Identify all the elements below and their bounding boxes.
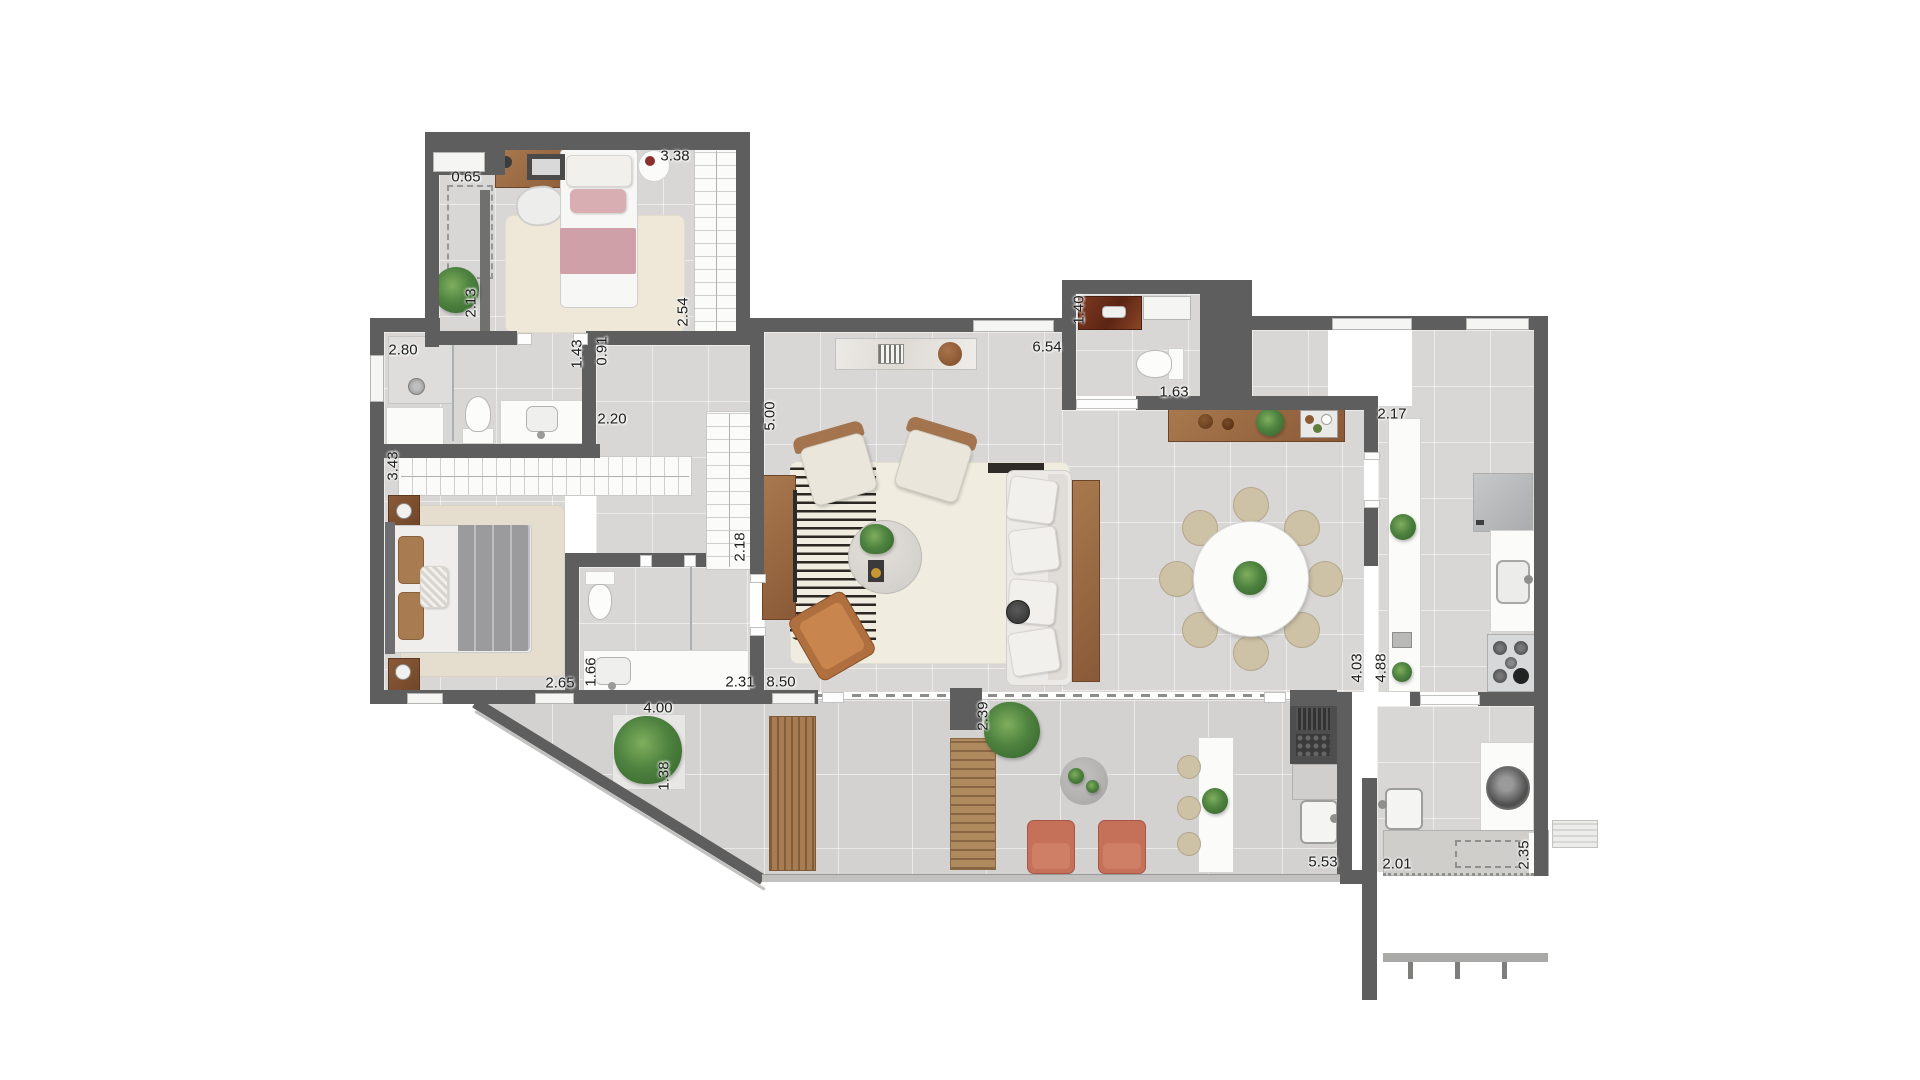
master-bottom-window-b bbox=[535, 693, 574, 704]
wall-kitchen-stub-a bbox=[1364, 396, 1378, 452]
ensuite-sink bbox=[595, 657, 631, 685]
laundry-counter-outline bbox=[1455, 840, 1521, 868]
dimension-label: 1.63 bbox=[1159, 385, 1188, 400]
washer-drum bbox=[1486, 766, 1530, 810]
bath1-sink bbox=[526, 406, 558, 432]
grill-counter bbox=[1290, 700, 1337, 764]
dimension-label: 2.31 bbox=[725, 675, 754, 690]
sideboard-bowl-1 bbox=[1198, 414, 1213, 429]
ensuite-door-jamb-b bbox=[684, 555, 696, 567]
hall-door-jamb-a bbox=[750, 574, 766, 583]
sliding-door-track bbox=[818, 694, 1290, 697]
sliding-door-track-base bbox=[818, 699, 1290, 700]
single-bed-pillow bbox=[566, 155, 632, 187]
dimension-label: 5.53 bbox=[1308, 855, 1337, 870]
dimension-label: 0.65 bbox=[451, 170, 480, 185]
bowl-decor bbox=[938, 342, 962, 366]
tray-cup-3 bbox=[1313, 424, 1322, 433]
shower-head-icon bbox=[408, 378, 425, 395]
dimension-label: 1.40 bbox=[1072, 295, 1087, 324]
tray-cup-1 bbox=[1305, 415, 1314, 424]
living-top-window bbox=[973, 320, 1054, 332]
sofa-pillow-1 bbox=[1005, 475, 1059, 525]
coffee-table-plant bbox=[860, 524, 894, 554]
dimension-label: 1.66 bbox=[584, 657, 599, 686]
stove bbox=[1487, 634, 1535, 692]
wall-laundry-right bbox=[1534, 706, 1548, 876]
dining-chair-s bbox=[1233, 635, 1269, 671]
sideboard-plant bbox=[1256, 408, 1284, 436]
double-bed-cushion bbox=[420, 566, 448, 608]
wall-terrace-right bbox=[1337, 692, 1352, 876]
apartment-floor-plan: 0.653.382.132.542.801.430.912.205.002.18… bbox=[0, 0, 1920, 1080]
wall-terrace-top-right bbox=[1290, 690, 1337, 706]
dimension-label: 2.20 bbox=[597, 412, 626, 427]
double-bed-blanket bbox=[458, 525, 530, 651]
railing-post-3 bbox=[1502, 962, 1507, 979]
toilet3-bowl bbox=[1136, 350, 1172, 378]
double-bed-headboard bbox=[385, 522, 395, 654]
grill-side-burner bbox=[1296, 734, 1330, 756]
single-bed-blanket bbox=[560, 228, 636, 274]
dimension-label: 5.00 bbox=[763, 401, 778, 430]
terrace-parapet bbox=[762, 874, 1340, 882]
burner-3 bbox=[1493, 669, 1507, 683]
bar-stool-2 bbox=[1177, 796, 1201, 820]
wall-kitchen-bottom-a bbox=[1410, 692, 1420, 706]
terrace-chair-left bbox=[1027, 820, 1075, 874]
island-plant-2 bbox=[1392, 662, 1412, 682]
shower-glass bbox=[452, 336, 454, 441]
bathroom1-window bbox=[370, 355, 384, 402]
tray-cup-2 bbox=[1321, 414, 1332, 425]
toilet2-tank bbox=[585, 571, 615, 585]
laundry-faucet bbox=[1378, 800, 1387, 809]
grill-grate bbox=[1296, 708, 1330, 730]
dimension-label: 2.17 bbox=[1377, 407, 1406, 422]
kitchen-stub-jamb-a bbox=[1364, 452, 1380, 460]
dining-chair-e bbox=[1307, 561, 1343, 597]
kitchen-island bbox=[1388, 418, 1421, 692]
master-wardrobe bbox=[398, 456, 692, 496]
dimension-label: 0.91 bbox=[595, 336, 610, 365]
terrace-deck-bench bbox=[950, 738, 996, 870]
dimension-label: 2.13 bbox=[464, 288, 479, 317]
wall-hall-living-a bbox=[750, 318, 764, 574]
wall-powder-bottom-a bbox=[1062, 396, 1076, 410]
sideboard-tray bbox=[1300, 410, 1338, 438]
tv bbox=[793, 490, 797, 602]
closet-divider-wall bbox=[480, 190, 490, 333]
bar-stool-1 bbox=[1177, 755, 1201, 779]
tv-console bbox=[762, 475, 796, 620]
dining-chair-w bbox=[1159, 561, 1195, 597]
wall-sideboard-back bbox=[1252, 396, 1364, 410]
island-item bbox=[1392, 632, 1412, 648]
dimension-label: 4.00 bbox=[643, 701, 672, 716]
wall-powder-top bbox=[1062, 280, 1200, 294]
dimension-label: 2.65 bbox=[545, 676, 574, 691]
railing-post-1 bbox=[1408, 962, 1413, 979]
exterior-ledge bbox=[1552, 820, 1598, 848]
dimension-label: 2.01 bbox=[1382, 857, 1411, 872]
dimension-label: 4.03 bbox=[1350, 653, 1365, 682]
terrace-chair-right bbox=[1098, 820, 1146, 874]
dimension-label: 2.54 bbox=[676, 297, 691, 326]
kitchen-stub-jamb-b bbox=[1364, 500, 1380, 508]
coffee-table-candle bbox=[871, 568, 881, 578]
dimension-label: 3.43 bbox=[386, 451, 401, 480]
wall-bedroom1-right bbox=[736, 132, 750, 332]
kitchen-door-leaf bbox=[1420, 695, 1480, 705]
sofa-pillow-4 bbox=[1007, 627, 1061, 678]
pouf-plant-1 bbox=[1068, 768, 1084, 784]
powder-sink bbox=[1102, 306, 1126, 318]
dimension-label: 2.80 bbox=[388, 343, 417, 358]
bedside-decor bbox=[645, 156, 655, 166]
kitchen-faucet bbox=[1524, 575, 1533, 584]
wall-kitchen-stub-b bbox=[1364, 506, 1378, 566]
dimension-label: 1.38 bbox=[657, 761, 672, 790]
dimension-label: 2.18 bbox=[733, 532, 748, 561]
burner-2 bbox=[1514, 641, 1528, 655]
terrace-palm bbox=[984, 702, 1040, 758]
pouf-plant-2 bbox=[1086, 780, 1099, 793]
powder-door-leaf bbox=[1076, 399, 1138, 409]
toilet2-bowl bbox=[588, 584, 612, 620]
burner-center bbox=[1505, 657, 1517, 669]
sofa-pillow-2 bbox=[1007, 525, 1060, 575]
terrace-louver bbox=[769, 716, 816, 871]
dimension-label: 4.88 bbox=[1374, 653, 1389, 682]
balcony-railing bbox=[1383, 953, 1548, 962]
terrace-pouf bbox=[1060, 757, 1108, 805]
speaker-decor bbox=[878, 344, 904, 364]
bar-stool-3 bbox=[1177, 832, 1201, 856]
dimension-label: 3.38 bbox=[660, 149, 689, 164]
single-bed-cushions bbox=[570, 189, 626, 213]
terrace-chair-left-cushion bbox=[1032, 843, 1070, 869]
burner-1 bbox=[1493, 641, 1507, 655]
nightstand-bottom-lamp bbox=[395, 664, 411, 680]
railing-post-2 bbox=[1455, 962, 1460, 979]
wall-kitchen-bottom-b bbox=[1478, 692, 1548, 706]
wall-east bbox=[1534, 316, 1548, 706]
powder-window bbox=[1143, 296, 1191, 320]
wall-bath1-bottom bbox=[370, 444, 600, 458]
laptop-screen bbox=[532, 159, 560, 175]
wall-laundry-left-tall bbox=[1362, 778, 1377, 1000]
wall-duct-block bbox=[1200, 280, 1252, 410]
bath1-faucet bbox=[537, 431, 545, 439]
laundry-sink bbox=[1385, 788, 1423, 830]
sofa-console bbox=[1072, 480, 1100, 682]
sideboard-bowl-2 bbox=[1222, 418, 1234, 430]
dimension-label: 8.50 bbox=[766, 675, 795, 690]
sliding-door-leaf-right bbox=[1264, 692, 1286, 703]
master-bottom-window-a bbox=[407, 693, 443, 704]
bedroom1-wardrobe bbox=[694, 148, 738, 335]
bath1-bench bbox=[386, 407, 444, 445]
ensuite-faucet bbox=[608, 682, 616, 690]
toilet1-bowl bbox=[465, 396, 491, 432]
north-window-a bbox=[1332, 318, 1412, 330]
side-table-decor bbox=[1006, 600, 1030, 624]
dimension-label: 1.43 bbox=[570, 339, 585, 368]
island-plant-1 bbox=[1390, 514, 1416, 540]
hall-door-jamb-b bbox=[750, 627, 766, 636]
dining-centerpiece-plant bbox=[1233, 561, 1267, 595]
lightwell-void bbox=[1328, 330, 1412, 406]
bedroom1-door-jamb-a bbox=[517, 333, 532, 345]
laundry-edge-dotted bbox=[1383, 873, 1534, 876]
north-window-b bbox=[1466, 318, 1529, 330]
wall-bedroom1-bottom-b bbox=[586, 331, 750, 345]
dining-chair-n bbox=[1233, 487, 1269, 523]
living-bottom-window bbox=[772, 693, 815, 704]
fridge-handle bbox=[1476, 520, 1484, 525]
terrace-chair-right-cushion bbox=[1103, 843, 1141, 869]
dimension-label: 2.39 bbox=[976, 701, 991, 730]
dimension-label: 6.54 bbox=[1032, 340, 1061, 355]
nightstand-top-lamp bbox=[396, 503, 412, 519]
wall-bedroom1-bottom-a bbox=[425, 331, 517, 345]
dimension-label: 2.35 bbox=[1517, 840, 1532, 869]
grill-counter-lower bbox=[1292, 764, 1339, 800]
ensuite-door-jamb-a bbox=[640, 555, 652, 567]
bar-counter-plant bbox=[1202, 788, 1228, 814]
burner-4 bbox=[1513, 668, 1529, 684]
sliding-door-leaf-left bbox=[822, 692, 844, 703]
